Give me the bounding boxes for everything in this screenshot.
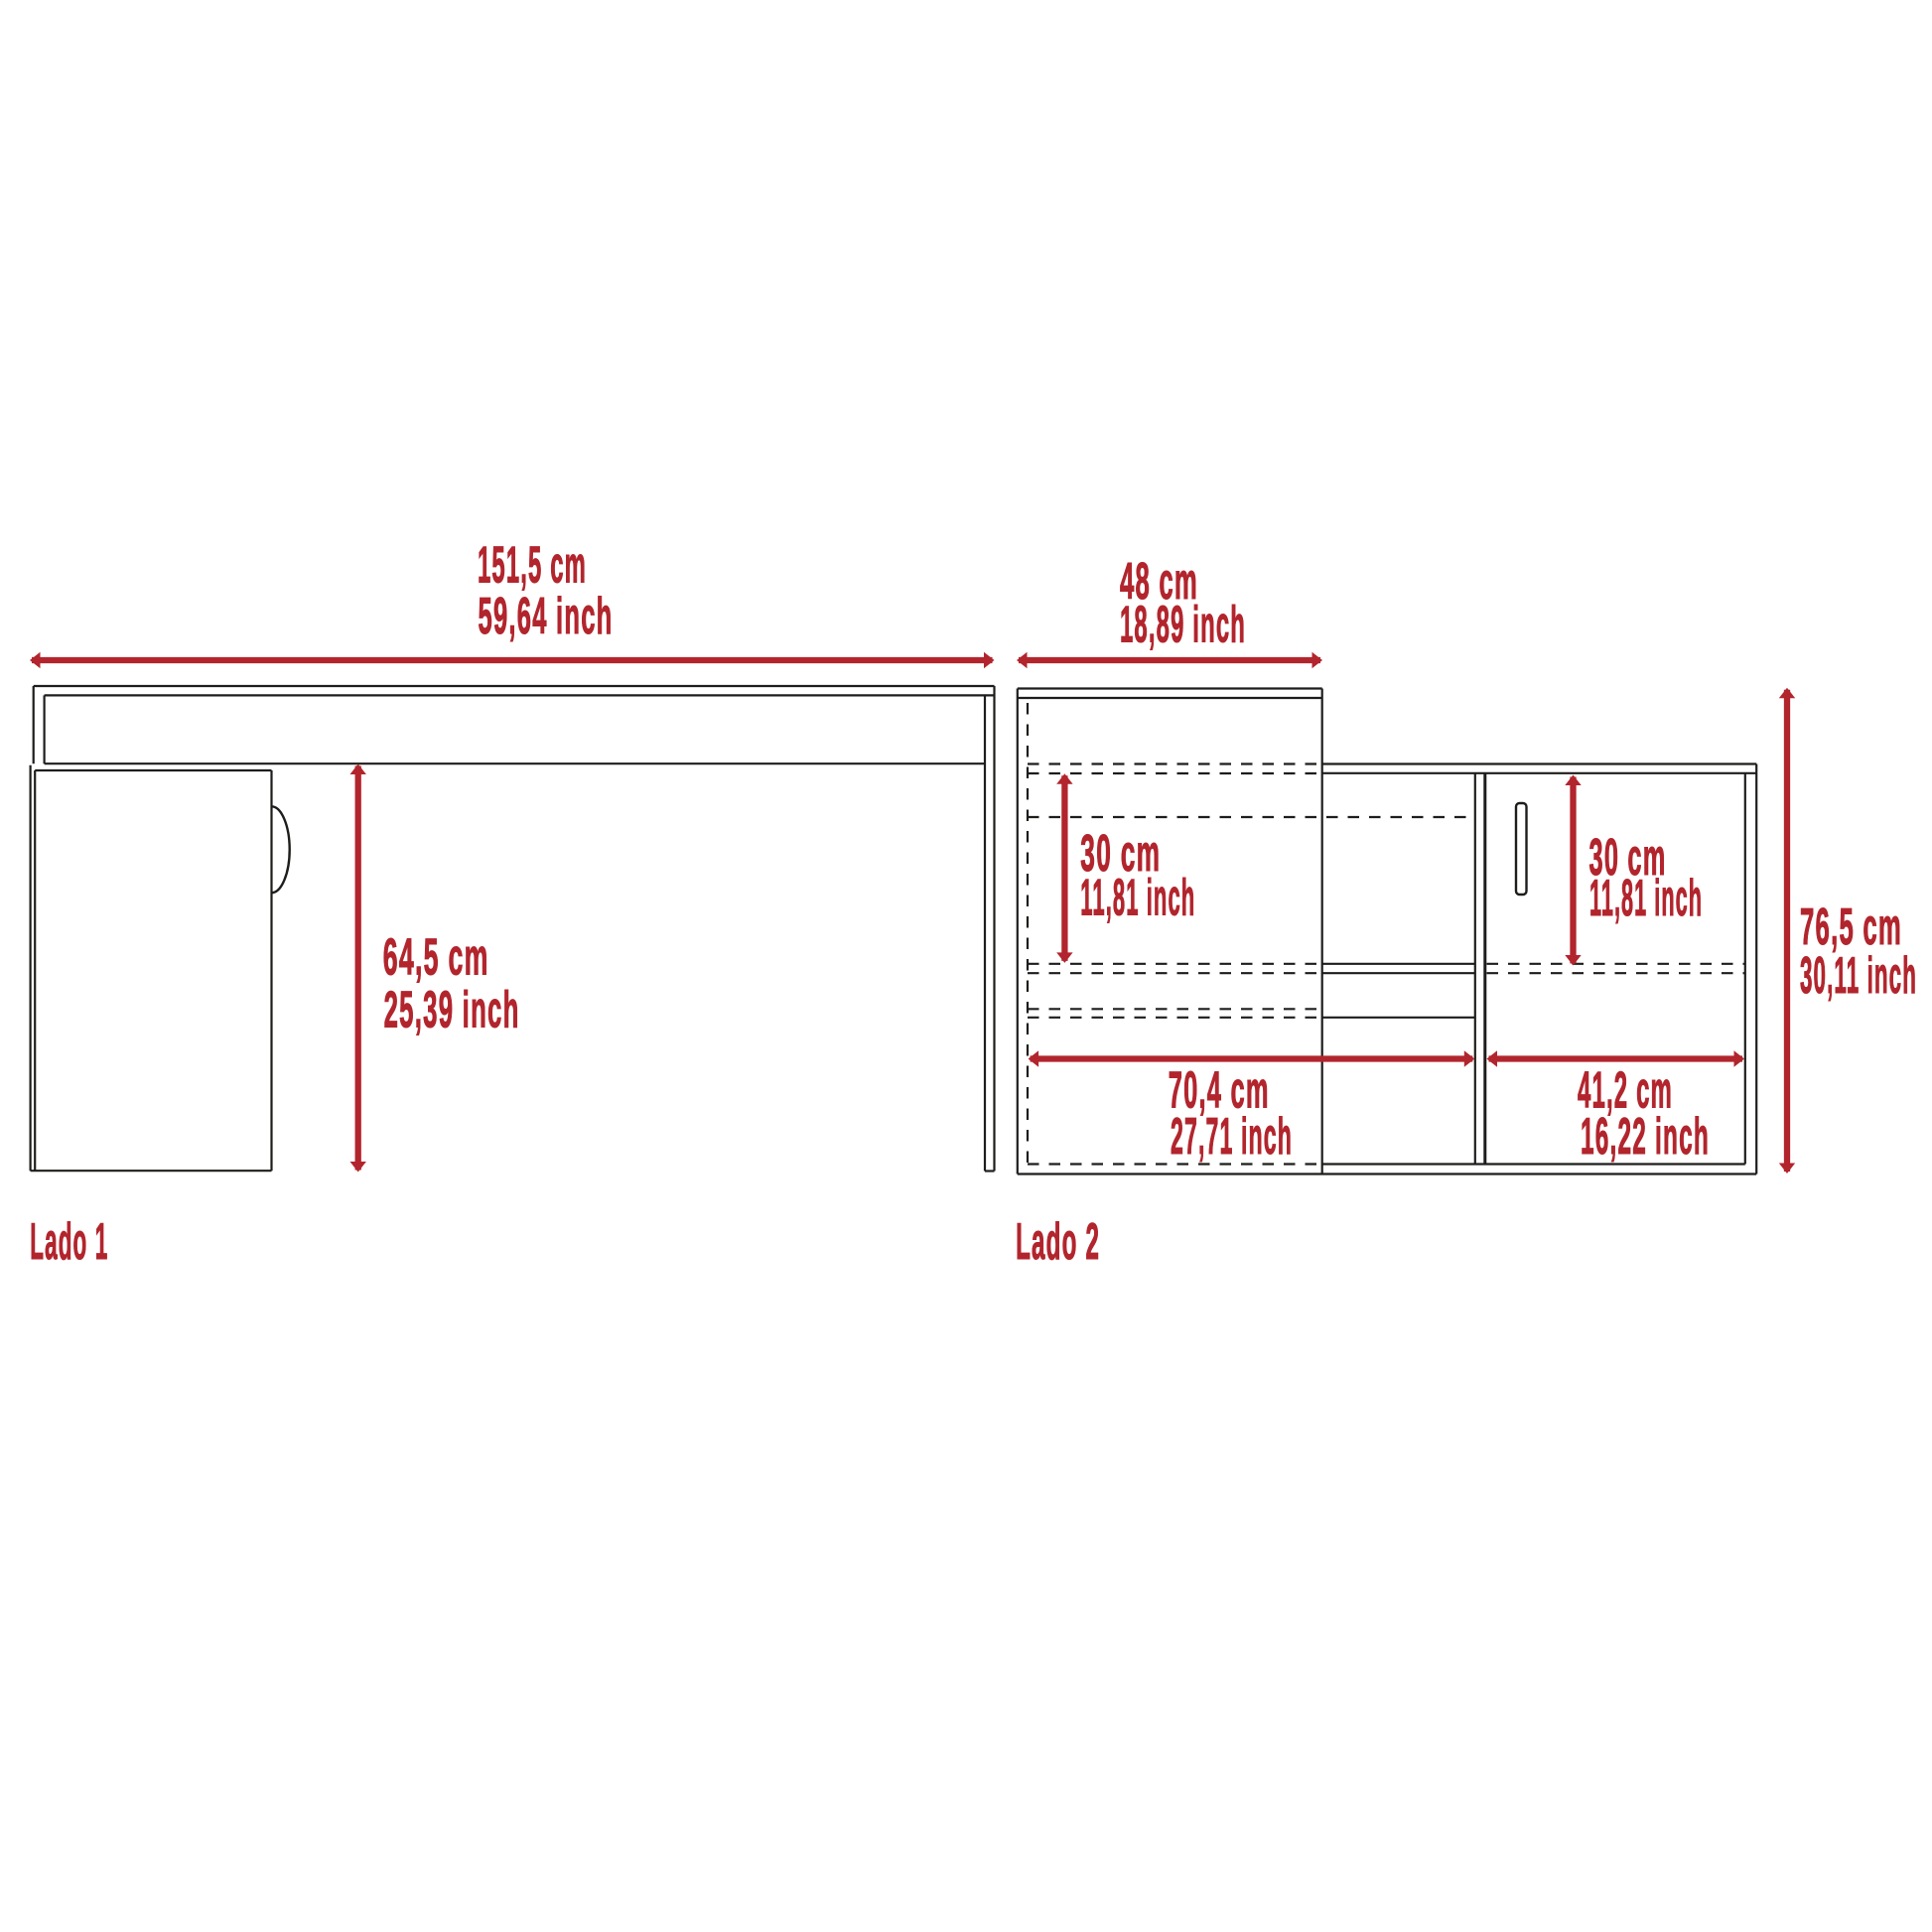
svg-text:151,5 cm: 151,5 cm: [478, 536, 587, 594]
svg-text:11,81 inch: 11,81 inch: [1589, 869, 1703, 926]
svg-text:16,22 inch: 16,22 inch: [1581, 1107, 1710, 1165]
svg-text:64,5 cm: 64,5 cm: [383, 928, 489, 986]
svg-text:Lado 1: Lado 1: [30, 1212, 108, 1270]
svg-text:25,39 inch: 25,39 inch: [384, 981, 520, 1038]
svg-text:18,89 inch: 18,89 inch: [1120, 595, 1246, 652]
svg-text:11,81 inch: 11,81 inch: [1080, 868, 1195, 925]
svg-text:Lado 2: Lado 2: [1016, 1212, 1100, 1270]
svg-text:30,11 inch: 30,11 inch: [1800, 946, 1917, 1004]
svg-text:27,71 inch: 27,71 inch: [1171, 1107, 1293, 1165]
svg-text:59,64 inch: 59,64 inch: [479, 587, 614, 644]
